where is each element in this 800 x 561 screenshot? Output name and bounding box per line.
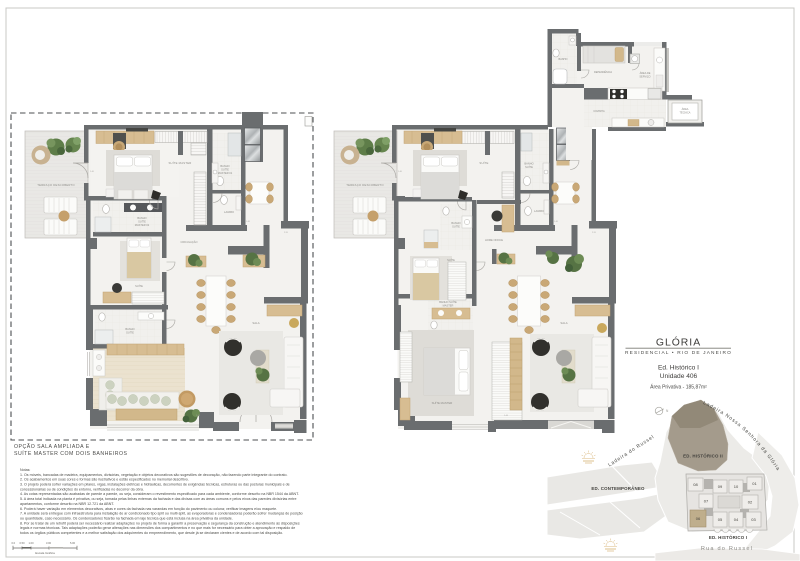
svg-text:SUÍTE: SUÍTE xyxy=(525,165,533,169)
svg-text:3.00: 3.00 xyxy=(46,541,52,545)
svg-text:1.00: 1.00 xyxy=(29,541,35,545)
svg-text:8. Por se tratar de um retrof: 8. Por se tratar de um retrofit poderá s… xyxy=(20,521,300,525)
svg-text:BANHO: BANHO xyxy=(451,221,460,225)
svg-text:BANHO SUÍTE: BANHO SUÍTE xyxy=(439,300,457,304)
svg-text:BANHO: BANHO xyxy=(524,162,533,166)
svg-text:ED. CONTEMPORÂNEO: ED. CONTEMPORÂNEO xyxy=(591,486,645,491)
svg-text:Rua do Russel: Rua do Russel xyxy=(701,546,753,552)
svg-text:RESIDENCIAL • RIO DE JANEIRO: RESIDENCIAL • RIO DE JANEIRO xyxy=(625,350,732,356)
svg-text:01: 01 xyxy=(752,481,757,486)
svg-text:SUÍTE: SUÍTE xyxy=(479,161,488,165)
svg-text:OPÇÃO SALA AMPLIADA E: OPÇÃO SALA AMPLIADA E xyxy=(14,443,90,450)
svg-text:concessionárias ou de condiçõe: concessionárias ou de condições do entor… xyxy=(20,487,144,491)
svg-text:08: 08 xyxy=(693,482,698,487)
svg-text:BANHO: BANHO xyxy=(220,164,229,168)
svg-text:Ed. Histórico I: Ed. Histórico I xyxy=(658,365,699,372)
svg-text:GLÓRIA: GLÓRIA xyxy=(656,336,701,349)
svg-text:SERVIÇO: SERVIÇO xyxy=(639,75,650,78)
svg-text:DEPENDÊNCIA: DEPENDÊNCIA xyxy=(594,71,612,74)
svg-text:3. O projeto poderá sofrer va: 3. O projeto poderá sofrer variações em … xyxy=(20,483,290,487)
svg-text:05: 05 xyxy=(718,517,723,522)
svg-text:SUÍTE: SUÍTE xyxy=(221,168,229,172)
svg-text:ou quantidade, caso necessário: ou quantidade, caso necessário. Os conde… xyxy=(20,517,233,521)
svg-text:legais e normas técnicas. Tais: legais e normas técnicas. Tais adaptaçõe… xyxy=(20,526,295,530)
svg-text:09: 09 xyxy=(718,484,723,489)
svg-text:SUÍTE: SUÍTE xyxy=(447,258,455,262)
svg-text:Escala Gráfica: Escala Gráfica xyxy=(35,551,55,555)
svg-text:4. As cotas representadas são: 4. As cotas representadas são acabadas d… xyxy=(20,492,299,496)
svg-text:COZINHA: COZINHA xyxy=(593,110,605,113)
svg-text:0.50: 0.50 xyxy=(20,541,26,545)
svg-text:TERRAÇO DESCOBERTO: TERRAÇO DESCOBERTO xyxy=(346,183,384,187)
svg-text:MASTER: MASTER xyxy=(443,304,454,308)
svg-text:TÉCNICA: TÉCNICA xyxy=(680,111,691,114)
svg-text:03: 03 xyxy=(751,517,756,522)
svg-text:SUÍTE: SUÍTE xyxy=(452,225,460,229)
svg-text:LAVABO: LAVABO xyxy=(534,209,544,213)
svg-text:MASTER 01: MASTER 01 xyxy=(218,171,233,175)
svg-text:ED. HISTÓRICO I: ED. HISTÓRICO I xyxy=(709,535,747,540)
svg-text:SUÍTE MASTER: SUÍTE MASTER xyxy=(432,401,453,405)
svg-text:SUÍTE MASTER: SUÍTE MASTER xyxy=(168,161,191,165)
svg-text:7. A unidade será entregue co: 7. A unidade será entregue com infraestr… xyxy=(20,512,303,516)
svg-text:HOME OFFICE: HOME OFFICE xyxy=(485,238,503,242)
svg-text:06: 06 xyxy=(696,516,701,521)
svg-text:SUÍTE: SUÍTE xyxy=(135,284,143,288)
svg-text:apartamentos, conforme descrit: apartamentos, conforme descrito na NBR 1… xyxy=(20,502,114,506)
svg-text:02: 02 xyxy=(748,500,753,505)
svg-text:07: 07 xyxy=(704,499,709,504)
svg-text:BANHO: BANHO xyxy=(125,327,134,331)
svg-text:5.00: 5.00 xyxy=(70,541,76,545)
svg-text:5. A área total indicada na p: 5. A área total indicada na planta é pri… xyxy=(20,497,296,501)
svg-text:BANHO: BANHO xyxy=(137,216,146,220)
svg-text:SUÍTE: SUÍTE xyxy=(126,331,134,335)
svg-text:Notas:: Notas: xyxy=(20,468,30,472)
svg-text:SUÍTE MASTER COM DOIS BANHEIRO: SUÍTE MASTER COM DOIS BANHEIROS xyxy=(14,450,128,457)
svg-text:TERRAÇO DESCOBERTO: TERRAÇO DESCOBERTO xyxy=(37,183,75,187)
svg-text:SUÍTE: SUÍTE xyxy=(138,220,146,224)
svg-text:MASTER 02: MASTER 02 xyxy=(135,223,150,227)
svg-text:ED. HISTÓRICO II: ED. HISTÓRICO II xyxy=(683,454,723,459)
svg-text:BANHO: BANHO xyxy=(559,58,568,61)
svg-text:SALA: SALA xyxy=(252,321,259,325)
svg-text:todos os órgãos públicos compe: todos os órgãos públicos competentes e a… xyxy=(20,531,283,535)
svg-text:10: 10 xyxy=(734,484,739,489)
svg-text:Área Privativa - 185,87m²: Área Privativa - 185,87m² xyxy=(650,384,707,391)
svg-text:0.0: 0.0 xyxy=(12,541,16,545)
svg-text:SALA: SALA xyxy=(560,321,567,325)
svg-text:2. Os acabamentos em suas cor: 2. Os acabamentos em suas cores e formas… xyxy=(20,478,189,482)
svg-text:Unidade 406: Unidade 406 xyxy=(660,373,698,380)
svg-text:04: 04 xyxy=(734,517,739,522)
svg-text:1. Os móveis, bancadas de mad: 1. Os móveis, bancadas de madeira, equip… xyxy=(20,473,288,477)
svg-text:6. Poderá haver variação em e: 6. Poderá haver variação em elementos de… xyxy=(20,507,277,511)
svg-text:LAVABO: LAVABO xyxy=(224,210,234,214)
